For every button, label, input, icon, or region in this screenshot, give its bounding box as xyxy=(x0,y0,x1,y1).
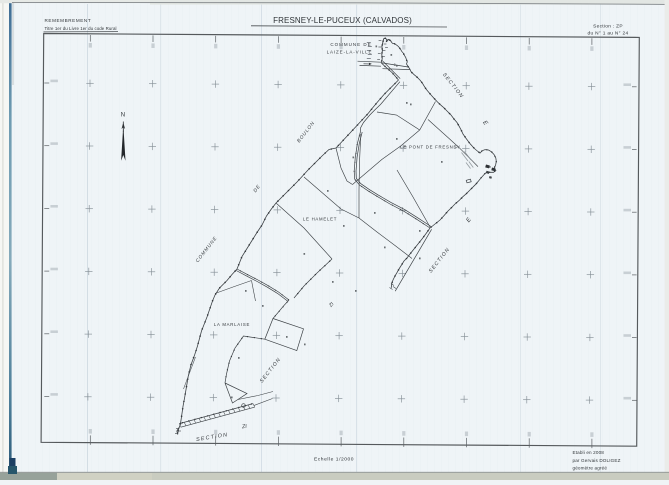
svg-text:LA MARLAISE: LA MARLAISE xyxy=(214,322,250,327)
svg-text:N: N xyxy=(121,113,125,119)
svg-text:COMMUNE DE: COMMUNE DE xyxy=(330,42,371,47)
svg-text:LAIZE-LA-VILLE: LAIZE-LA-VILLE xyxy=(327,50,373,55)
svg-text:du N° 1 au N° 24: du N° 1 au N° 24 xyxy=(588,31,629,37)
svg-text:LE HAMELET: LE HAMELET xyxy=(303,217,337,222)
svg-text:LE PONT DE FRESNEY: LE PONT DE FRESNEY xyxy=(400,145,460,150)
svg-text:Echelle 1/2000: Echelle 1/2000 xyxy=(314,457,354,463)
svg-text:Section : ZP: Section : ZP xyxy=(593,24,623,30)
svg-text:Etabli en 2008: Etabli en 2008 xyxy=(573,450,605,455)
svg-text:Titre 1er du Livre 1er du code: Titre 1er du Livre 1er du code Rural xyxy=(45,26,117,31)
svg-text:géomètre agréé: géomètre agréé xyxy=(573,466,608,471)
svg-text:8: 8 xyxy=(394,63,396,67)
svg-text:REMEMBREMENT: REMEMBREMENT xyxy=(45,18,92,23)
svg-text:FRESNEY-LE-PUCEUX (CALVADOS): FRESNEY-LE-PUCEUX (CALVADOS) xyxy=(273,16,412,25)
svg-text:par Gervais DOLIGEZ: par Gervais DOLIGEZ xyxy=(573,458,621,463)
